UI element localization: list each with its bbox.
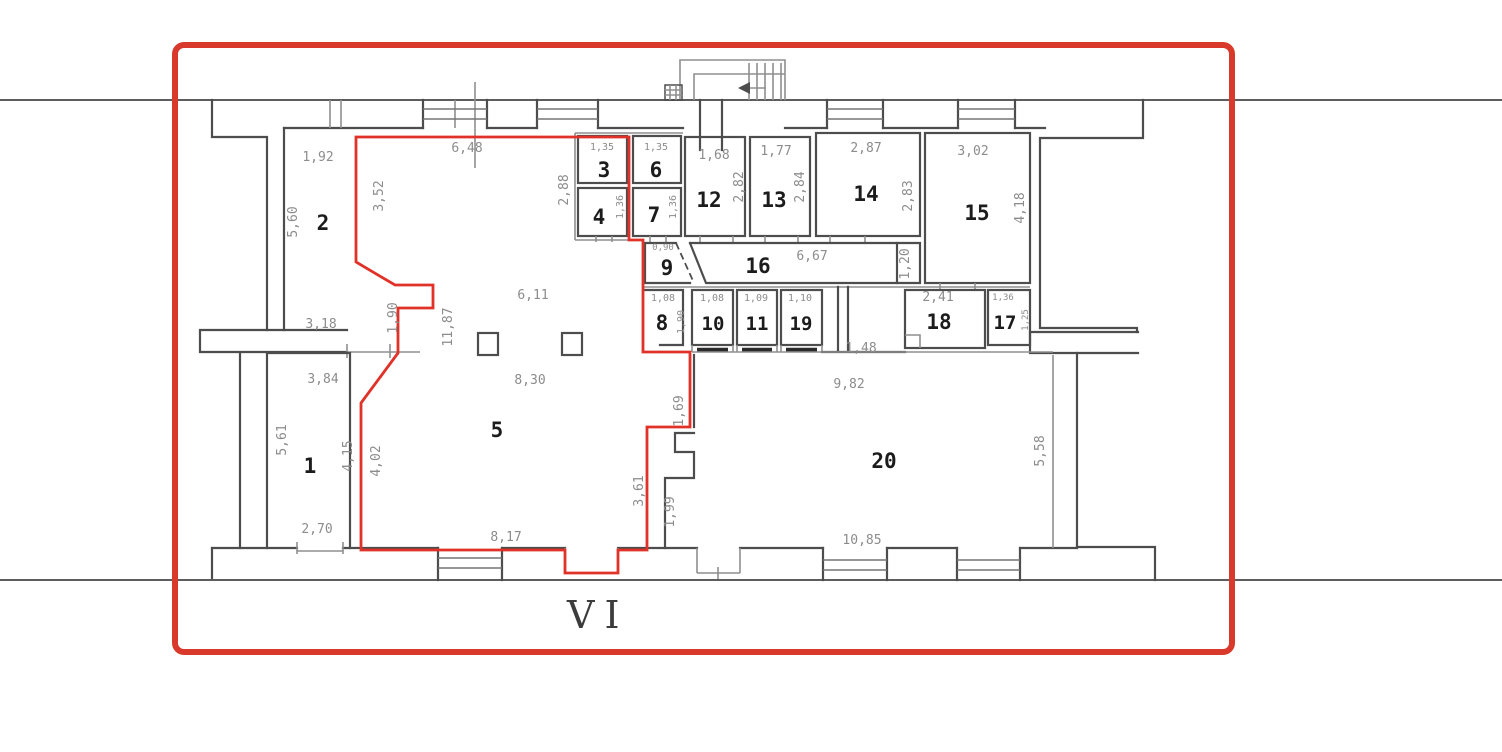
- dim-r11-top: 1,09: [744, 293, 768, 304]
- dim-r15-top: 3,02: [957, 144, 988, 159]
- stair-direction-arrow: [738, 82, 750, 94]
- dim-r2-bottom: 3,18: [305, 317, 336, 332]
- dim-r16-width: 6,67: [796, 249, 827, 264]
- dim-r14-right: 2,83: [901, 180, 916, 211]
- room-label-11: 11: [746, 313, 769, 335]
- dim-r5-top: 6,48: [451, 141, 482, 156]
- dim-r10-top: 1,08: [700, 293, 724, 304]
- dim-r12-right: 2,82: [732, 171, 747, 202]
- floor-plan-viewer: 1,92 6,48 1,35 1,35 1,68 1,77 2,87 3,02 …: [0, 0, 1502, 752]
- dim-r1-bottom: 2,70: [301, 522, 332, 537]
- room-label-8: 8: [656, 311, 669, 335]
- dim-r17-top: 1,36: [992, 293, 1014, 303]
- dim-r13-right: 2,84: [793, 171, 808, 202]
- dim-r9-top: 0,90: [652, 243, 674, 253]
- dim-r5-left-long: 11,87: [441, 307, 456, 346]
- room-label-18: 18: [926, 310, 951, 334]
- room-label-9: 9: [661, 256, 674, 280]
- dim-r1-left: 5,61: [275, 424, 290, 455]
- dim-r20-left: 1,99: [663, 496, 678, 527]
- room-label-13: 13: [761, 188, 786, 212]
- dim-hall-width: 1,48: [845, 341, 876, 356]
- dim-r17-right: 1,25: [1021, 309, 1031, 331]
- dim-r20-top: 9,82: [833, 377, 864, 392]
- room-label-14: 14: [853, 182, 878, 206]
- room-label-12: 12: [696, 188, 721, 212]
- dim-r13-top: 1,77: [760, 144, 791, 159]
- dim-r12-top: 1,68: [698, 148, 729, 163]
- dim-r7-right: 1,36: [668, 195, 679, 219]
- room-label-10: 10: [702, 313, 725, 335]
- walls-corridor-16: [643, 243, 1030, 287]
- room-label-7: 7: [648, 203, 661, 227]
- dim-r5-mid: 6,11: [517, 288, 548, 303]
- room-label-16: 16: [745, 254, 770, 278]
- dim-r5-left: 4,02: [369, 445, 384, 476]
- dim-r2-top: 1,92: [302, 150, 333, 165]
- dim-r4-right: 1,36: [615, 195, 626, 219]
- room-label-20: 20: [871, 449, 896, 473]
- dim-r6-top: 1,35: [644, 142, 668, 153]
- dimension-labels-rotated: 5,60 3,52 2,88 1,36 1,36 2,82 2,84 2,83 …: [275, 171, 1048, 527]
- section-label: VI: [566, 593, 629, 637]
- dim-r2-left: 5,60: [286, 206, 301, 237]
- room-label-2: 2: [317, 211, 330, 235]
- dim-r8-right: 1,90: [676, 310, 687, 334]
- dim-r5-jog: 1,90: [386, 302, 401, 333]
- room-label-19: 19: [790, 313, 813, 335]
- dim-r5-center: 8,30: [514, 373, 545, 388]
- floor-plan-drawing: 1,92 6,48 1,35 1,35 1,68 1,77 2,87 3,02 …: [0, 0, 1502, 752]
- dim-r5-bottom: 8,17: [490, 530, 521, 545]
- walls-right-block: [1030, 100, 1143, 548]
- dim-r5-upper-left: 3,52: [372, 180, 387, 211]
- dim-r18-top: 2,41: [922, 290, 953, 305]
- room5-columns: [478, 333, 582, 355]
- dim-r8-top: 1,08: [651, 293, 675, 304]
- room-label-4: 4: [593, 205, 606, 229]
- dim-r20-niche: 1,69: [672, 395, 687, 426]
- room-label-5: 5: [491, 418, 504, 442]
- dim-r3-top: 1,35: [590, 142, 614, 153]
- dim-r19-top: 1,10: [788, 293, 812, 304]
- room-label-3: 3: [598, 158, 611, 182]
- exterior-wall-bottom: [212, 542, 1155, 580]
- dim-r34-left: 2,88: [557, 174, 572, 205]
- dim-r20-right: 5,58: [1033, 435, 1048, 466]
- dim-r1-top: 3,84: [307, 372, 338, 387]
- room-label-1: 1: [304, 454, 317, 478]
- dim-r1-right: 4,15: [341, 440, 356, 471]
- room-label-17: 17: [994, 312, 1017, 334]
- dim-r15-right: 4,18: [1013, 192, 1028, 223]
- dim-r5-right: 3,61: [632, 475, 647, 506]
- room-label-6: 6: [650, 158, 663, 182]
- dim-r14-top: 2,87: [850, 141, 881, 156]
- room-label-15: 15: [964, 201, 989, 225]
- dim-r16-right: 1,20: [898, 248, 913, 279]
- dim-r20-bottom: 10,85: [842, 533, 881, 548]
